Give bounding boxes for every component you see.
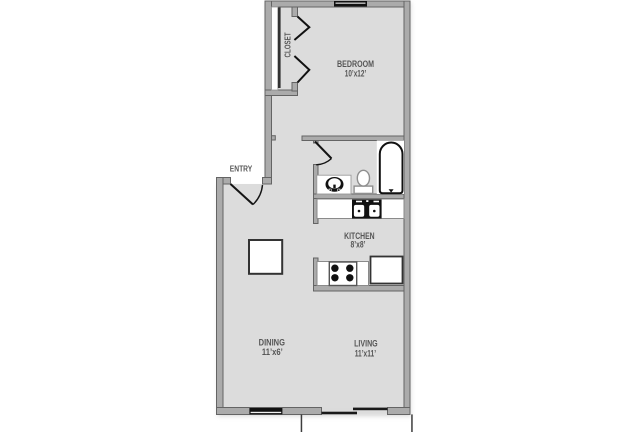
svg-text:8’x8’: 8’x8’ [351, 240, 366, 250]
svg-text:LIVING: LIVING [354, 338, 378, 348]
svg-text:DINING: DINING [259, 337, 285, 347]
svg-text:11’x11’: 11’x11’ [355, 348, 376, 358]
svg-text:ENTRY: ENTRY [230, 164, 253, 173]
svg-text:CLOSET: CLOSET [283, 32, 292, 57]
svg-text:11’x6’: 11’x6’ [262, 347, 283, 357]
svg-text:10’x12’: 10’x12’ [345, 69, 367, 79]
